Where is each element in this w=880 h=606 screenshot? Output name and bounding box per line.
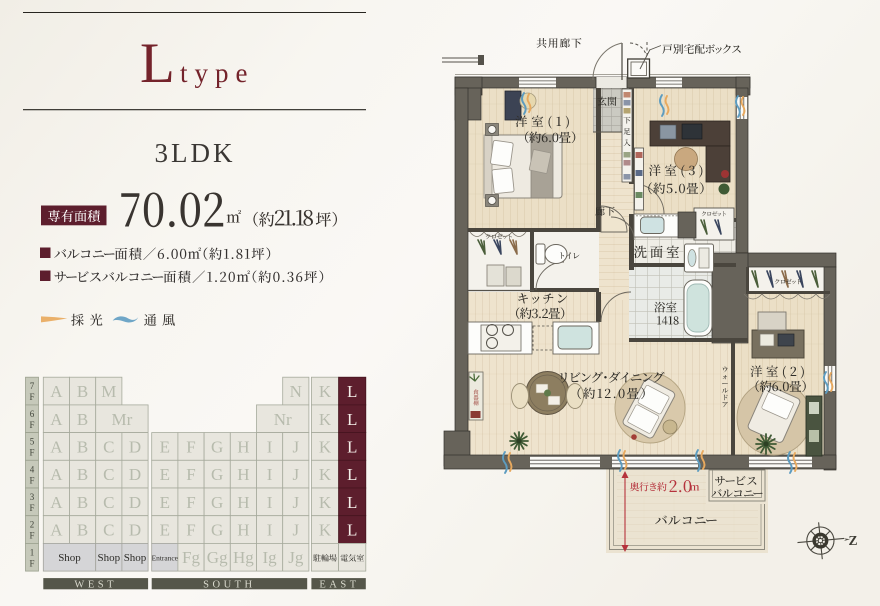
svg-text:2: 2 bbox=[30, 520, 35, 530]
svg-text:B: B bbox=[77, 465, 88, 484]
svg-text:H: H bbox=[237, 437, 249, 456]
svg-text:D: D bbox=[129, 465, 141, 484]
svg-text:Z: Z bbox=[848, 533, 857, 548]
svg-text:I: I bbox=[267, 465, 273, 484]
svg-text:H: H bbox=[237, 521, 249, 540]
svg-text:B: B bbox=[77, 521, 88, 540]
svg-text:F: F bbox=[186, 521, 195, 540]
svg-text:E: E bbox=[160, 465, 170, 484]
svg-text:F: F bbox=[29, 448, 34, 458]
svg-text:Ig: Ig bbox=[263, 548, 278, 567]
svg-text:K: K bbox=[319, 521, 332, 540]
svg-text:Fg: Fg bbox=[182, 548, 200, 567]
svg-text:D: D bbox=[129, 437, 141, 456]
svg-text:F: F bbox=[29, 475, 34, 485]
svg-text:A: A bbox=[50, 382, 63, 401]
svg-text:J: J bbox=[292, 521, 299, 540]
svg-text:5: 5 bbox=[30, 437, 35, 447]
svg-text:Jg: Jg bbox=[288, 548, 304, 567]
svg-text:type: type bbox=[180, 58, 255, 88]
svg-text:C: C bbox=[103, 437, 114, 456]
svg-text:F: F bbox=[29, 420, 34, 430]
svg-text:3: 3 bbox=[30, 492, 35, 502]
svg-text:F: F bbox=[186, 493, 195, 512]
svg-text:K: K bbox=[319, 493, 332, 512]
svg-text:L: L bbox=[347, 382, 357, 401]
svg-text:A: A bbox=[50, 410, 63, 429]
svg-text:3LDK: 3LDK bbox=[155, 138, 236, 168]
svg-text:E: E bbox=[160, 437, 170, 456]
svg-text:A: A bbox=[50, 465, 63, 484]
svg-text:A: A bbox=[50, 493, 63, 512]
svg-text:K: K bbox=[319, 410, 332, 429]
svg-text:C: C bbox=[103, 465, 114, 484]
svg-text:E: E bbox=[160, 493, 170, 512]
svg-text:Shop: Shop bbox=[58, 552, 81, 564]
svg-text:G: G bbox=[211, 521, 223, 540]
svg-text:Shop: Shop bbox=[97, 552, 120, 564]
svg-text:F: F bbox=[186, 437, 195, 456]
svg-text:1: 1 bbox=[30, 547, 35, 557]
svg-text:F: F bbox=[186, 465, 195, 484]
svg-text:L: L bbox=[347, 410, 357, 429]
svg-text:J: J bbox=[292, 437, 299, 456]
svg-text:G: G bbox=[211, 437, 223, 456]
svg-text:WEST: WEST bbox=[74, 579, 117, 590]
svg-text:H: H bbox=[237, 465, 249, 484]
svg-text:Mr: Mr bbox=[112, 410, 133, 429]
svg-text:I: I bbox=[267, 437, 273, 456]
svg-text:J: J bbox=[292, 493, 299, 512]
svg-text:Hg: Hg bbox=[233, 548, 254, 567]
svg-text:L: L bbox=[347, 493, 357, 512]
svg-text:C: C bbox=[103, 521, 114, 540]
svg-text:F: F bbox=[29, 392, 34, 402]
svg-text:C: C bbox=[103, 493, 114, 512]
svg-text:F: F bbox=[29, 531, 34, 541]
svg-text:Shop: Shop bbox=[124, 552, 147, 564]
svg-text:L: L bbox=[347, 465, 357, 484]
svg-text:G: G bbox=[211, 465, 223, 484]
svg-text:F: F bbox=[29, 558, 34, 568]
svg-text:L: L bbox=[140, 32, 175, 95]
svg-text:F: F bbox=[29, 503, 34, 513]
svg-text:EAST: EAST bbox=[319, 579, 359, 590]
svg-text:N: N bbox=[290, 382, 302, 401]
svg-text:Gg: Gg bbox=[207, 548, 228, 567]
svg-text:G: G bbox=[211, 493, 223, 512]
svg-text:L: L bbox=[347, 437, 357, 456]
svg-text:D: D bbox=[129, 521, 141, 540]
svg-text:B: B bbox=[77, 493, 88, 512]
svg-text:D: D bbox=[129, 493, 141, 512]
svg-text:B: B bbox=[77, 437, 88, 456]
svg-text:A: A bbox=[50, 437, 63, 456]
svg-text:4: 4 bbox=[30, 464, 35, 474]
svg-text:K: K bbox=[319, 465, 332, 484]
svg-text:6: 6 bbox=[30, 409, 35, 419]
svg-text:SOUTH: SOUTH bbox=[203, 579, 256, 590]
svg-text:K: K bbox=[319, 437, 332, 456]
svg-text:M: M bbox=[101, 382, 116, 401]
svg-text:A: A bbox=[50, 521, 63, 540]
svg-text:Entrance: Entrance bbox=[152, 553, 179, 562]
svg-text:J: J bbox=[292, 465, 299, 484]
svg-text:I: I bbox=[267, 521, 273, 540]
svg-text:B: B bbox=[77, 410, 88, 429]
svg-text:7: 7 bbox=[30, 381, 35, 391]
svg-text:L: L bbox=[347, 521, 357, 540]
svg-text:E: E bbox=[160, 521, 170, 540]
svg-text:Nr: Nr bbox=[274, 410, 292, 429]
svg-text:K: K bbox=[319, 382, 332, 401]
svg-text:H: H bbox=[237, 493, 249, 512]
svg-text:I: I bbox=[267, 493, 273, 512]
svg-text:B: B bbox=[77, 382, 88, 401]
